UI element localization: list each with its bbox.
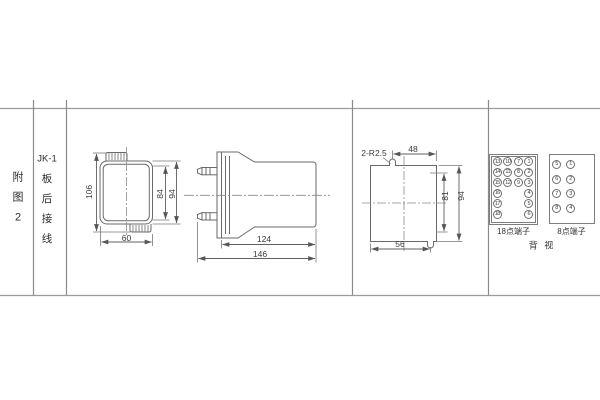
terminal-8: 8 (514, 168, 523, 177)
terminal-6: 6 (552, 175, 561, 184)
dim-corner-radius-note: 2-R2.5 (361, 149, 387, 158)
dim-cutout-height: 94 (456, 191, 465, 200)
terminal-13: 13 (493, 157, 502, 166)
terminal-2: 2 (566, 175, 575, 184)
wiring-label-char-4: 线 (42, 234, 53, 245)
terminal-3: 3 (566, 189, 575, 198)
terminal-grid-18: 131071141182151293164175186 (491, 156, 536, 223)
terminal-7: 7 (514, 157, 523, 166)
dim-top-slot-offset: 48 (408, 145, 417, 154)
terminal-9: 9 (514, 178, 523, 187)
terminal-block-8: 51627384 (549, 154, 596, 224)
terminal-18: 18 (493, 210, 502, 219)
terminal-6: 6 (524, 210, 533, 219)
dim-slot-span: 81 (441, 191, 450, 200)
terminal-block-18-label: 18点端子 (497, 228, 530, 236)
top-tab-hatch (109, 153, 124, 160)
dim-case-height: 94 (167, 189, 176, 198)
wiring-label-char-2: 后 (42, 194, 53, 205)
terminal-stud-bottom (198, 213, 218, 220)
terminal-14: 14 (493, 168, 502, 177)
model-label: JK-1 (37, 154, 57, 164)
bottom-tab-hatch (133, 225, 148, 232)
technical-drawing-page: { "sidebar": { "figure_chars": ["附", "图"… (0, 0, 600, 400)
figure-label-char-1: 附 (13, 173, 24, 184)
terminal-11: 11 (503, 168, 512, 177)
terminal-7: 7 (552, 189, 561, 198)
dim-overall-depth: 146 (253, 249, 267, 258)
terminal-2: 2 (524, 168, 533, 177)
panel-cutout-drawing (362, 151, 463, 253)
terminal-4: 4 (524, 189, 533, 198)
terminal-stud-top (198, 168, 218, 175)
terminal-5: 5 (524, 199, 533, 208)
rear-view-label: 背 视 (529, 242, 556, 251)
terminal-15: 15 (493, 178, 502, 187)
terminal-10: 10 (503, 157, 512, 166)
figure-label-char-2: 图 (13, 193, 24, 204)
dim-body-depth: 124 (257, 235, 271, 244)
terminal-4: 4 (566, 204, 575, 213)
wiring-label-char-1: 板 (42, 174, 53, 185)
dim-overall-height: 106 (85, 185, 94, 199)
figure-label-char-3: 2 (15, 213, 21, 224)
terminal-16: 16 (493, 189, 502, 198)
dim-bottom-slot-offset: 56 (395, 240, 404, 249)
terminal-12: 12 (503, 178, 512, 187)
terminal-5: 5 (552, 160, 561, 169)
cutout-dimension-lines (372, 154, 460, 249)
dim-case-width: 60 (122, 234, 131, 243)
terminal-1: 1 (524, 157, 533, 166)
terminal-8: 8 (552, 204, 561, 213)
dim-opening-height: 84 (156, 189, 165, 198)
wiring-label-char-3: 接 (42, 214, 53, 225)
terminal-block-18: 131071141182151293164175186 (489, 154, 538, 225)
table-column-rules (34, 100, 489, 296)
terminal-block-8-label: 8点端子 (557, 228, 585, 236)
side-view-drawing (184, 152, 330, 263)
terminal-17: 17 (493, 199, 502, 208)
terminal-1: 1 (566, 160, 575, 169)
terminal-3: 3 (524, 178, 533, 187)
